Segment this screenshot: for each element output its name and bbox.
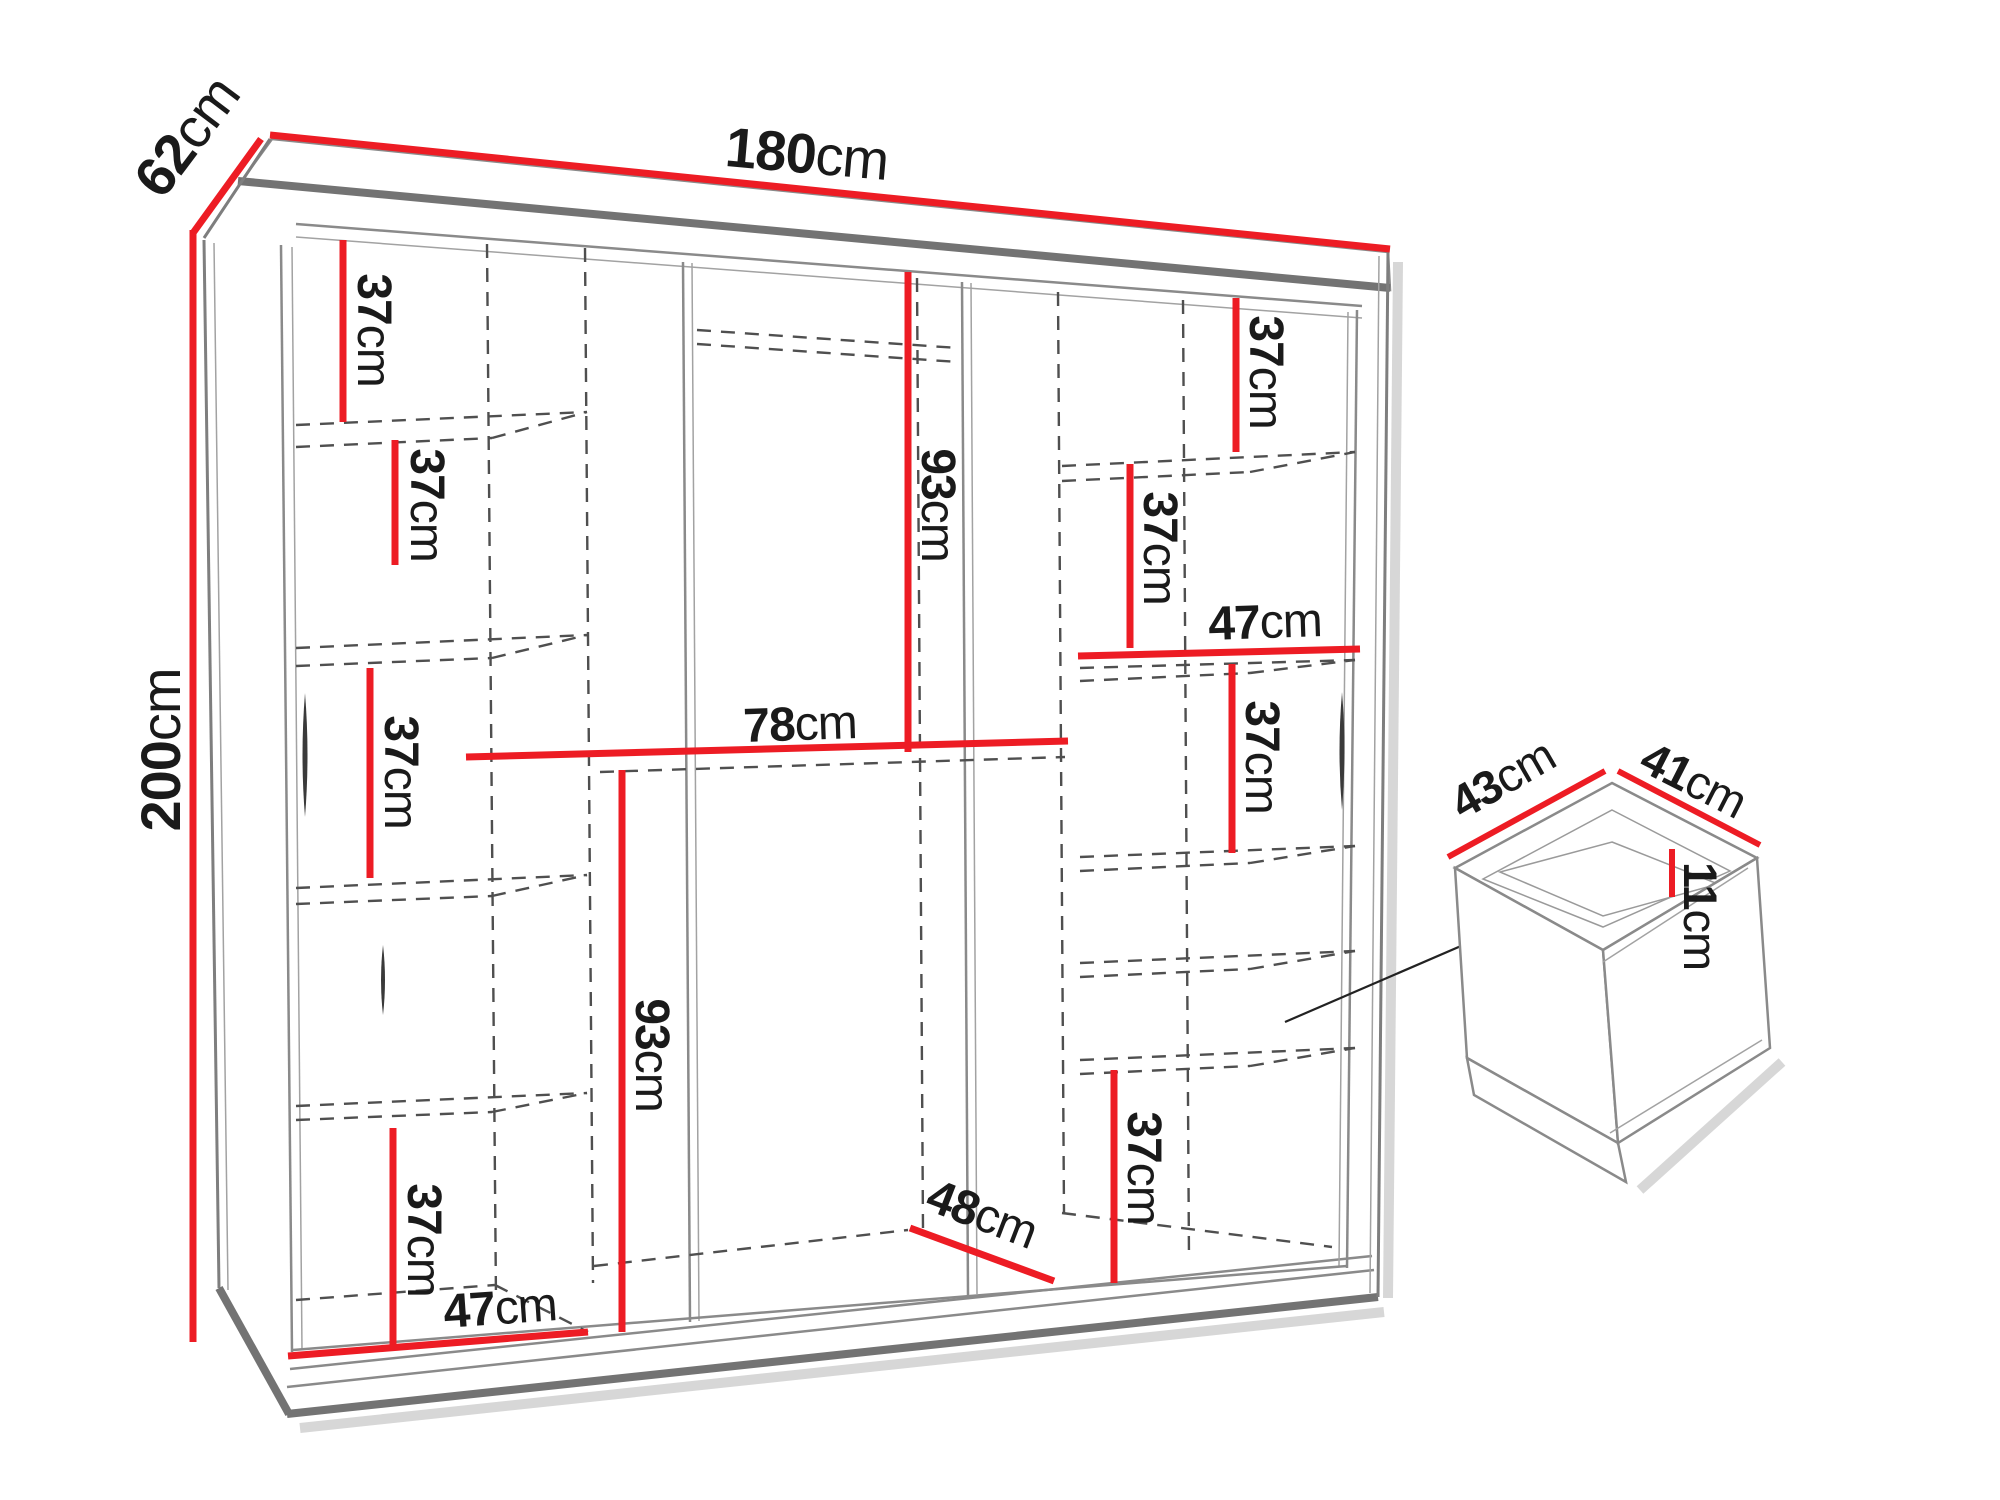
shelf-edge-dashed xyxy=(1062,472,1250,481)
left-wall-b xyxy=(292,247,302,1350)
dim-label-left-shelf-3: 37cm xyxy=(375,715,428,828)
divider-right-b xyxy=(971,283,977,1294)
shelf-edge-dashed xyxy=(1080,1066,1250,1074)
door-handle-middle-icon xyxy=(381,945,385,1015)
shelf-edge-dashed xyxy=(296,1093,587,1106)
diagram-canvas: 180cm 62cm 200cm 37cm 37cm 37cm 37cm 47c… xyxy=(0,0,2000,1500)
door-handle-left-icon xyxy=(303,693,308,817)
dim-label-mid-shelf-width: 78cm xyxy=(742,696,857,753)
shelf-wedge-dashed xyxy=(492,412,587,438)
right-floor-back-edge xyxy=(1062,1213,1332,1247)
shelf-edge-dashed xyxy=(1080,969,1250,977)
middle-extension-line xyxy=(917,278,923,1230)
divider-right-a xyxy=(962,282,968,1295)
shelf-wedge-dashed xyxy=(492,635,587,658)
divider-left-b xyxy=(692,263,699,1321)
shelf-edge-dashed xyxy=(296,875,587,888)
middle-floor-back-edge xyxy=(594,1230,908,1266)
side-shadow xyxy=(1388,262,1398,1298)
shelf-edge-dashed xyxy=(1080,660,1355,668)
dim-label-right-shelf-2: 37cm xyxy=(1134,491,1187,604)
dim-label-height: 200cm xyxy=(129,668,192,831)
dim-label-width: 180cm xyxy=(723,115,891,192)
right-edge-inner xyxy=(1370,256,1379,1293)
dim-label-mid-lower-height: 93cm xyxy=(626,998,679,1111)
dim-label-depth: 62cm xyxy=(121,64,251,208)
dim-label-left-shelf-4: 37cm xyxy=(398,1183,451,1296)
left-column-side-edge xyxy=(585,248,593,1283)
dim-label-right-shelf-3: 37cm xyxy=(1236,700,1289,813)
top-cap-left-edge xyxy=(204,139,270,238)
drawer-detail xyxy=(1285,771,1782,1190)
dim-label-drawer-height: 11cm xyxy=(1675,862,1728,970)
left-wall-a xyxy=(281,245,292,1352)
shelf-edge-dashed xyxy=(296,896,492,904)
dim-label-left-bottom-width: 47cm xyxy=(442,1278,559,1339)
shelf-edge-dashed xyxy=(296,658,492,666)
hanging-rod-a xyxy=(697,330,958,348)
wardrobe-dimension-drawing: 180cm 62cm 200cm 37cm 37cm 37cm 37cm 47c… xyxy=(0,0,2000,1500)
shelf-edge-dashed xyxy=(1080,846,1355,857)
shelf-edge-dashed xyxy=(1062,452,1355,466)
dim-label-left-shelf-2: 37cm xyxy=(401,448,454,561)
dim-label-mid-upper-height: 93cm xyxy=(912,448,965,561)
dim-label-right-shelf-width: 47cm xyxy=(1207,594,1322,651)
hanging-rod-b xyxy=(697,344,958,362)
divider-left-a xyxy=(683,262,690,1322)
right-wall-b xyxy=(1339,312,1348,1266)
dim-label-right-shelf-4: 37cm xyxy=(1118,1111,1171,1224)
dim-label-right-shelf-1: 37cm xyxy=(1240,315,1293,428)
shelf-edge-dashed xyxy=(1080,673,1250,681)
dim-label-left-shelf-1: 37cm xyxy=(348,273,401,386)
right-column-back-edge xyxy=(1058,292,1064,1213)
shelf-edge-dashed xyxy=(1080,863,1250,871)
dim-label-mid-floor-depth: 48cm xyxy=(920,1169,1045,1259)
wardrobe-interior-dashed xyxy=(296,244,1355,1332)
middle-shelf-dashed xyxy=(600,757,1065,772)
shelf-edge-dashed xyxy=(1080,951,1355,963)
bottom-left-chamfer xyxy=(219,1288,289,1414)
shelf-edge-dashed xyxy=(296,1112,492,1120)
left-column-back-edge xyxy=(487,244,496,1300)
dim-label-drawer-width: 43cm xyxy=(1441,727,1564,828)
shelf-edge-dashed xyxy=(1080,1048,1355,1060)
dimension-labels: 180cm 62cm 200cm 37cm 37cm 37cm 37cm 47c… xyxy=(121,64,1756,1338)
right-column-side-edge xyxy=(1183,300,1189,1260)
